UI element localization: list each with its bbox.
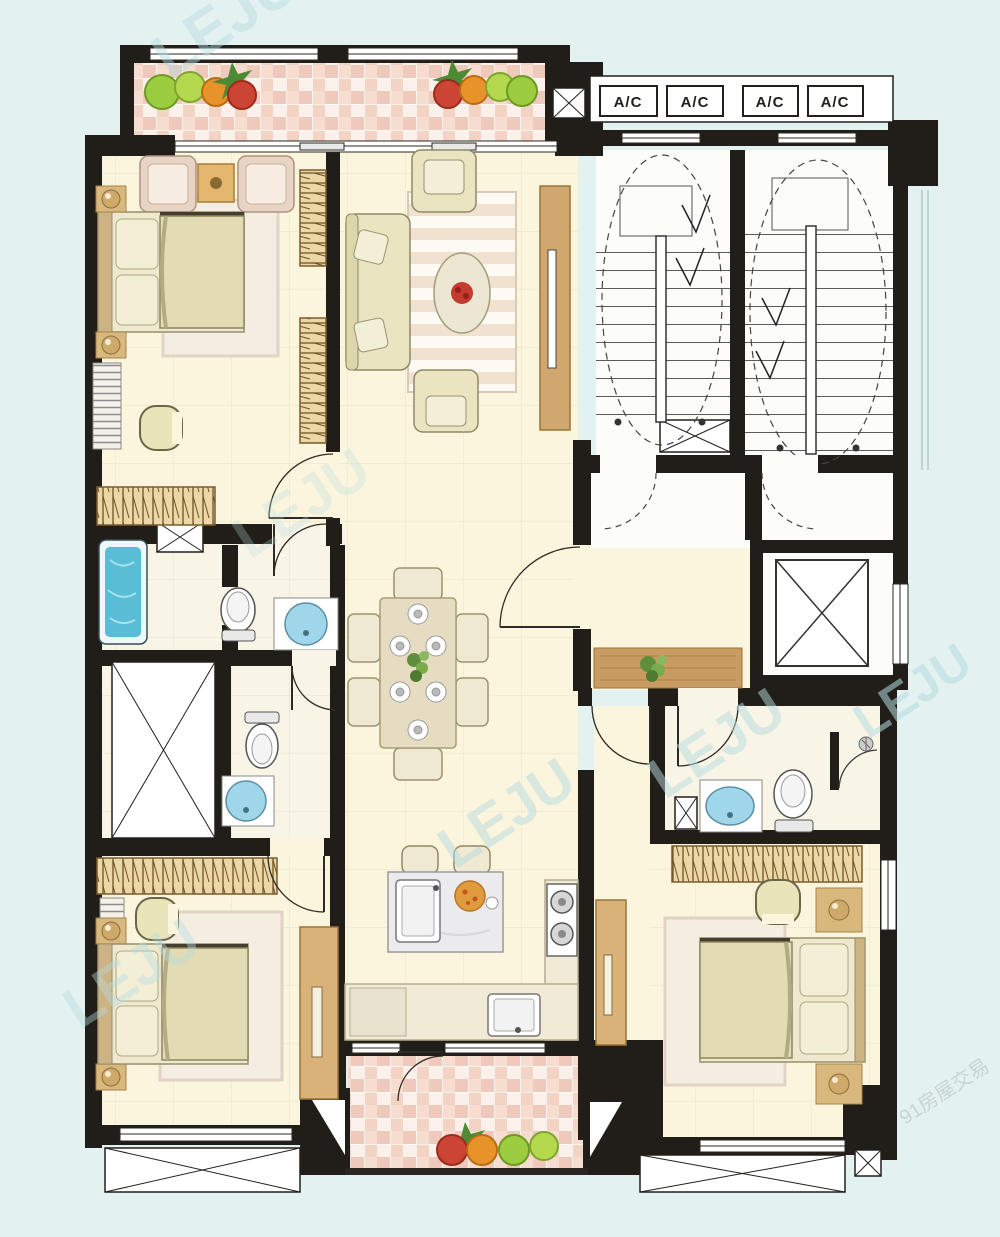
lamp [829,900,849,920]
stair-steps [745,228,893,452]
dining-chair [394,568,442,600]
floor-plan-canvas: A/C A/C A/C A/C [0,0,1000,1237]
window-bedroom2-bottom [120,1128,292,1141]
chair [140,406,182,450]
tv [548,250,556,368]
base-cabinet [350,988,406,1036]
double-bed [98,212,244,332]
duct-shaft-stairs [660,420,730,452]
flower-centerpiece [451,282,473,304]
nightstand [96,332,126,358]
sliding-window-balcony [175,141,557,152]
dining-chair [456,678,488,726]
nightstand [816,888,862,932]
wall-elevator-top [750,540,893,553]
wardrobe [97,858,277,894]
watermark-corner-text: 91房屋交易 [895,1054,993,1129]
toilet-tank [775,820,813,832]
window-bedroom3-bottom [700,1140,845,1152]
blanket [160,216,244,328]
tv-console [540,186,570,430]
window-stairs-2 [778,133,856,143]
sofa-pillow [353,317,389,353]
nightstand [816,1064,862,1104]
pillow [800,1002,848,1054]
elevator [776,560,868,666]
ac-label-4: A/C [821,94,850,111]
duct-shaft-top [553,88,585,118]
coffee-table [434,253,490,333]
desk [300,927,338,1099]
planter-rack-bottom-left [105,1148,300,1192]
entry-mat [594,648,742,688]
dining-chair [348,678,380,726]
pillow [800,944,848,996]
shower-partition [830,732,839,790]
bookshelf [300,170,326,266]
lamp [829,1074,849,1094]
wash-basin [706,787,754,825]
blanket [700,942,792,1058]
toilet-tank [245,712,279,723]
dining-chair [456,614,488,662]
pillow [116,219,158,269]
nightstand [96,1064,126,1090]
duct-shaft-bath [157,522,203,552]
wall-kitchen-right [578,770,594,1040]
wardrobe [672,846,862,882]
headboard [98,212,112,332]
toilet-tank [222,630,255,641]
pizza [455,881,485,911]
balcony-bottom-rail [345,1168,588,1175]
kitchen-island [388,872,503,952]
double-bed [700,938,865,1062]
armchair [414,370,478,432]
ac-ledge: A/C A/C A/C A/C [590,76,893,122]
light-well-left [112,662,215,838]
stair-rail [806,226,816,454]
ac-label-2: A/C [681,94,710,111]
bathtub-room [99,540,147,644]
lamp [102,922,120,940]
stair-right-door-gap [762,455,818,473]
stair-rail [656,236,666,422]
stair-left-door-gap [600,455,656,473]
wall-stair-divider [730,150,745,455]
wall-elevator-left [750,540,763,688]
lamp [102,1068,120,1086]
window-stairs-1 [622,133,700,143]
bar-stool [402,846,438,874]
wash-basin [226,781,266,821]
lobby-floor [591,470,893,548]
window-balcony-top-2 [348,48,518,60]
bookshelf [300,318,326,443]
sofa-pillow [353,229,389,265]
armchair [140,156,196,212]
elevator-door [893,584,908,664]
window-kitchen-balcony-2 [445,1043,545,1053]
dining-chair [348,614,380,662]
ac-label-3: A/C [756,94,785,111]
wall-master-living [326,146,340,452]
ac-label-1: A/C [614,94,643,111]
wall-bedroom2-top [85,838,270,856]
lamp [102,336,120,354]
nightstand [96,186,126,212]
neighbor-outline [922,190,928,470]
lamp [102,190,120,208]
headboard [855,938,865,1062]
armchair [238,156,294,212]
floor-plan-drawing: A/C A/C A/C A/C [0,0,1000,1237]
wall-bath3-bottom [650,830,880,844]
wash-basin [285,603,327,645]
planter-rack-bottom-right [640,1155,845,1192]
wall-right-upper [893,130,908,475]
dining-chair [394,748,442,780]
wall-entry [573,440,591,545]
sofa [346,214,410,370]
side-table [198,164,234,202]
wall-bath-east [330,545,345,838]
armchair [412,150,476,212]
window-kitchen-balcony-1 [352,1043,400,1053]
window-bedroom3-right [881,860,896,930]
dresser [93,363,121,449]
duct-shaft-corner [855,1150,881,1176]
pillow [116,275,158,325]
faucet [433,885,439,891]
wardrobe [97,487,215,525]
chair [756,880,800,924]
cup [486,897,498,909]
kitchen-counter-bottom [345,984,578,1040]
corridor-cabinet [596,900,626,1045]
